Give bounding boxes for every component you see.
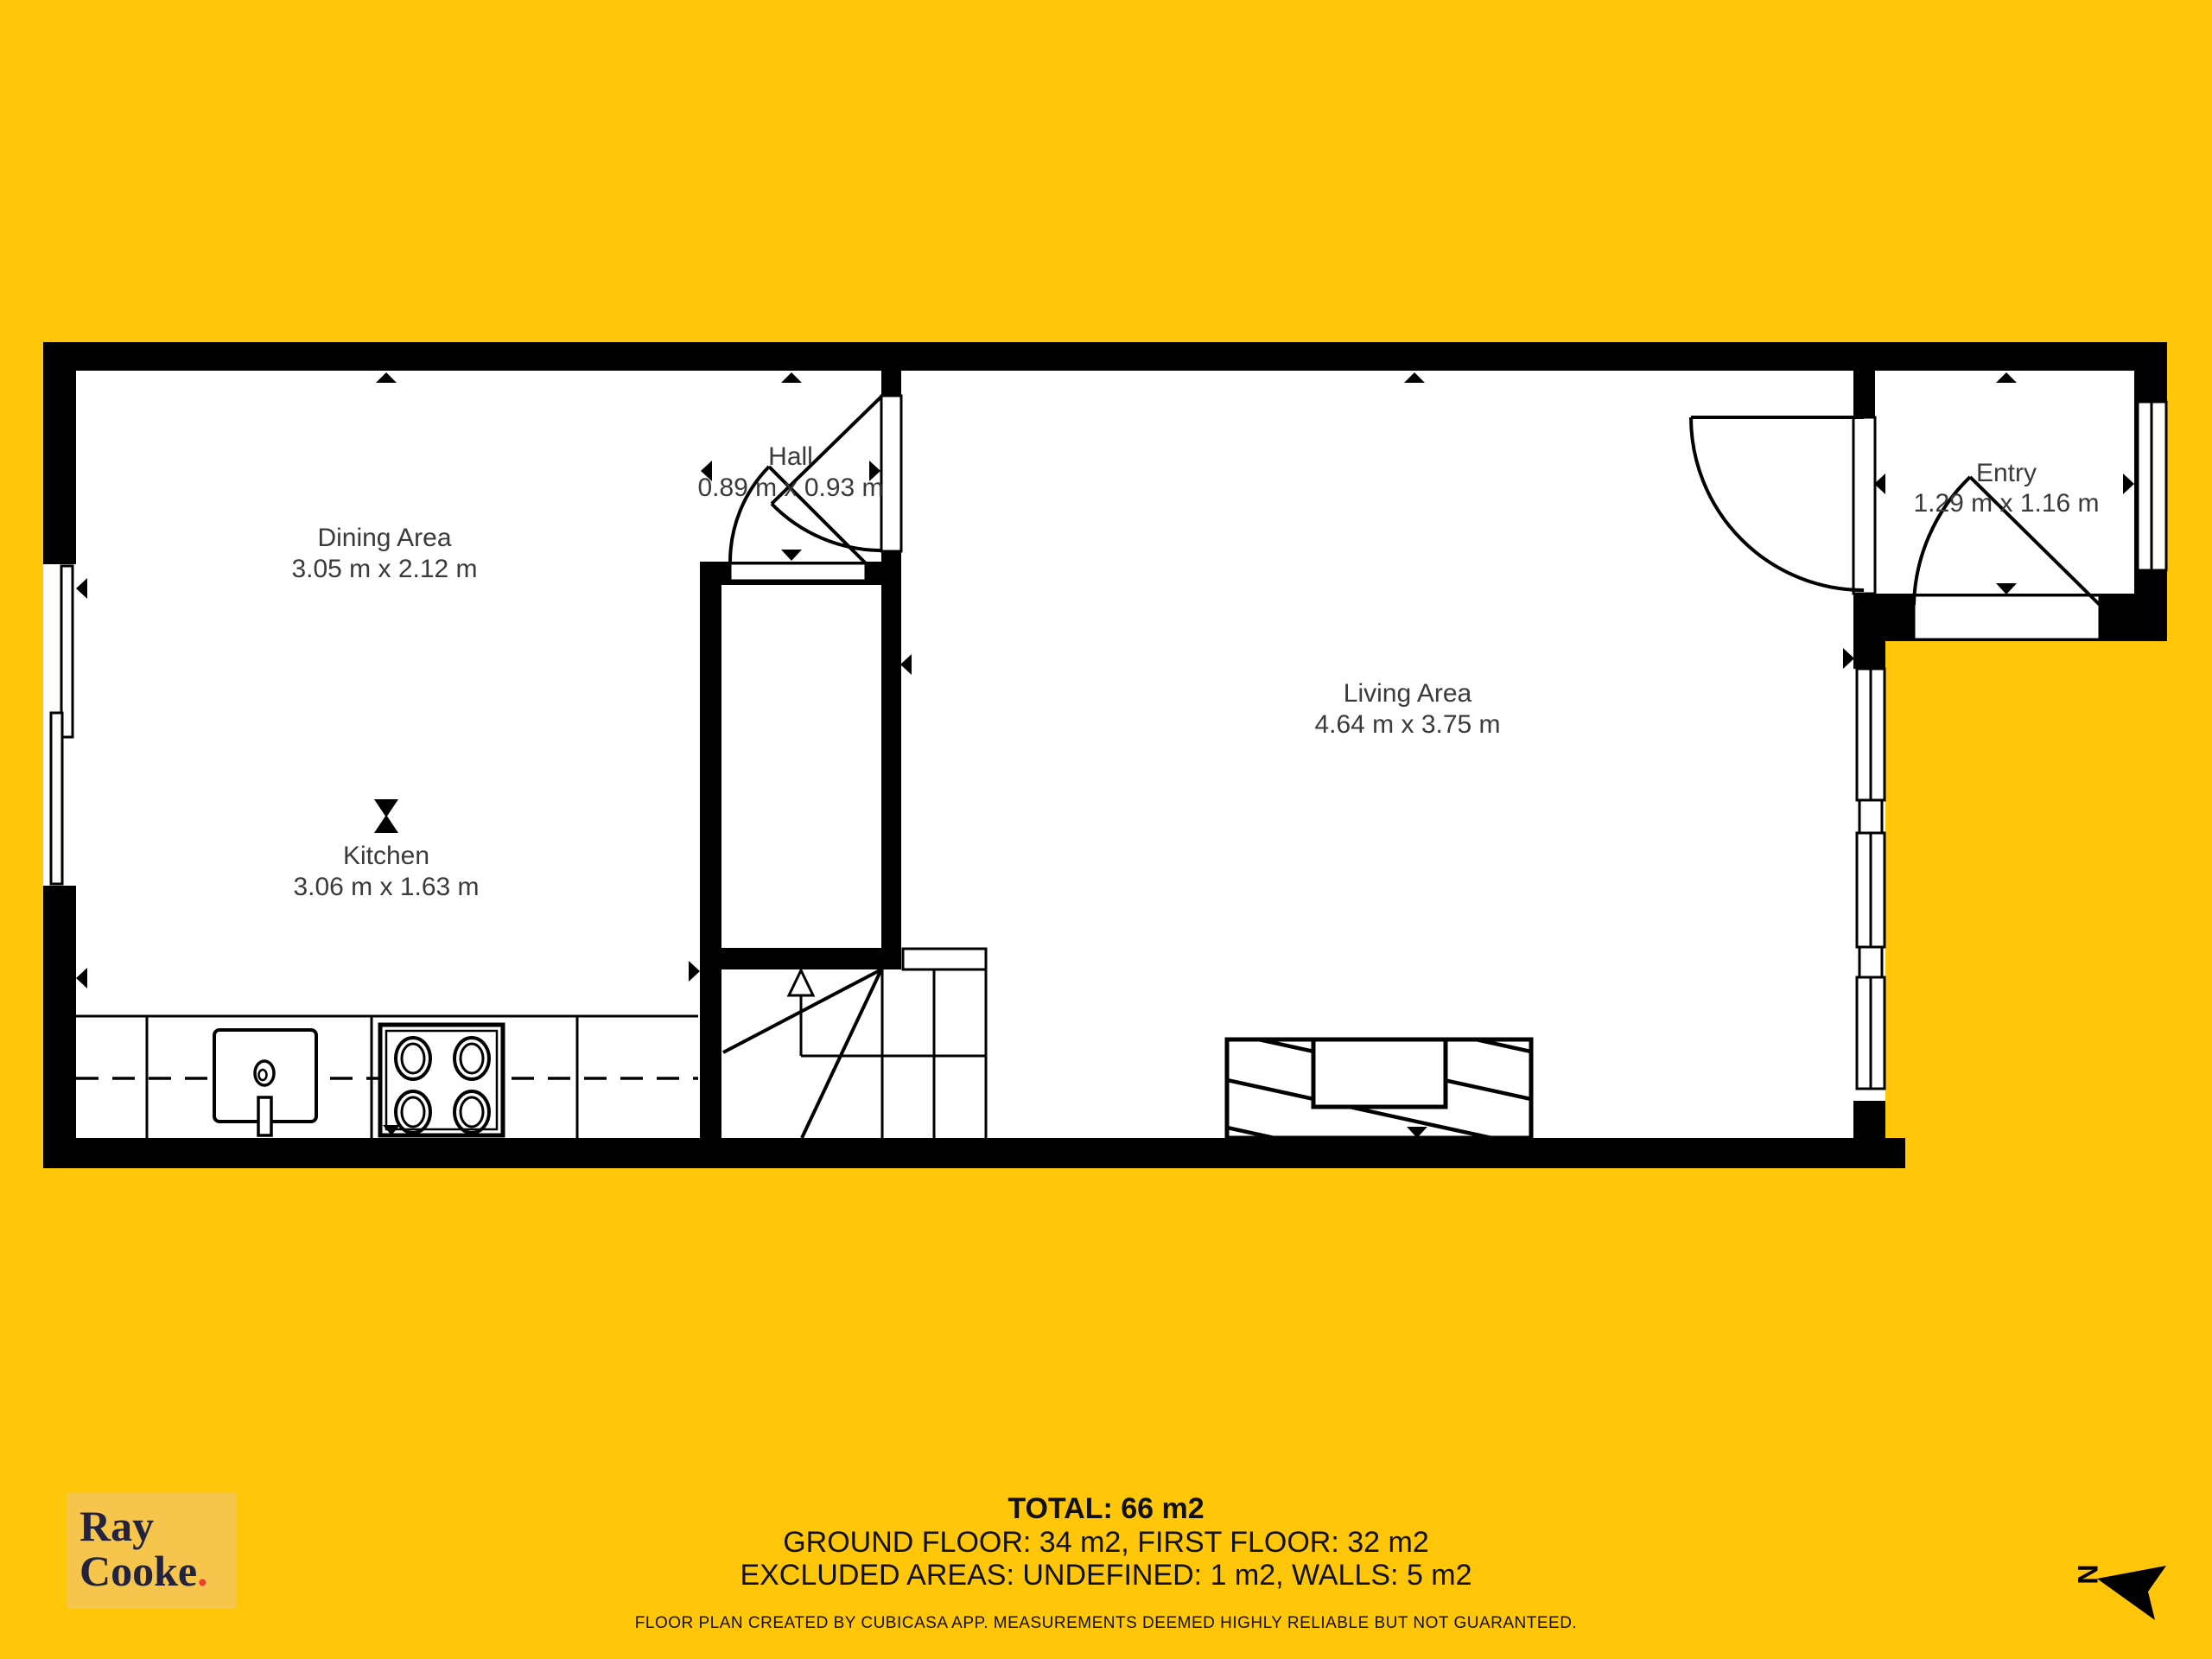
area-summary: TOTAL: 66 m2 GROUND FLOOR: 34 m2, FIRST … [0,1491,2212,1633]
stove-icon [380,1025,503,1135]
svg-text:3.06 m x 1.63 m: 3.06 m x 1.63 m [293,873,479,901]
excluded-areas-text: EXCLUDED AREAS: UNDEFINED: 1 m2, WALLS: … [0,1559,2212,1592]
floor-plan: Dining Area 3.05 m x 2.12 m Kitchen 3.06… [0,0,2212,1659]
svg-text:Dining Area: Dining Area [317,524,451,552]
svg-text:1.29 m x 1.16 m: 1.29 m x 1.16 m [1913,489,2099,518]
svg-text:Kitchen: Kitchen [343,842,429,870]
svg-text:3.05 m x 2.12 m: 3.05 m x 2.12 m [291,555,477,583]
floor-areas-text: GROUND FLOOR: 34 m2, FIRST FLOOR: 32 m2 [0,1526,2212,1559]
window-icon [1857,833,1885,947]
total-area-text: TOTAL: 66 m2 [0,1491,2212,1526]
svg-text:Hall: Hall [768,442,813,471]
window-joint [1859,800,1882,833]
window-icon [1857,977,1885,1089]
window-joint [1859,947,1882,977]
window-icon [51,713,62,884]
window-icon [1857,669,1885,800]
window-icon [2138,402,2166,570]
sink-icon [214,1030,316,1135]
window-icon [61,566,73,737]
svg-text:0.89 m x 0.93 m: 0.89 m x 0.93 m [697,474,883,502]
svg-text:Living Area: Living Area [1344,679,1472,708]
svg-text:4.64 m x 3.75 m: 4.64 m x 3.75 m [1314,710,1500,739]
disclaimer-text: FLOOR PLAN CREATED BY CUBICASA APP. MEAS… [0,1614,2212,1633]
svg-text:Entry: Entry [1976,459,2037,487]
floor-base [43,342,2167,1168]
